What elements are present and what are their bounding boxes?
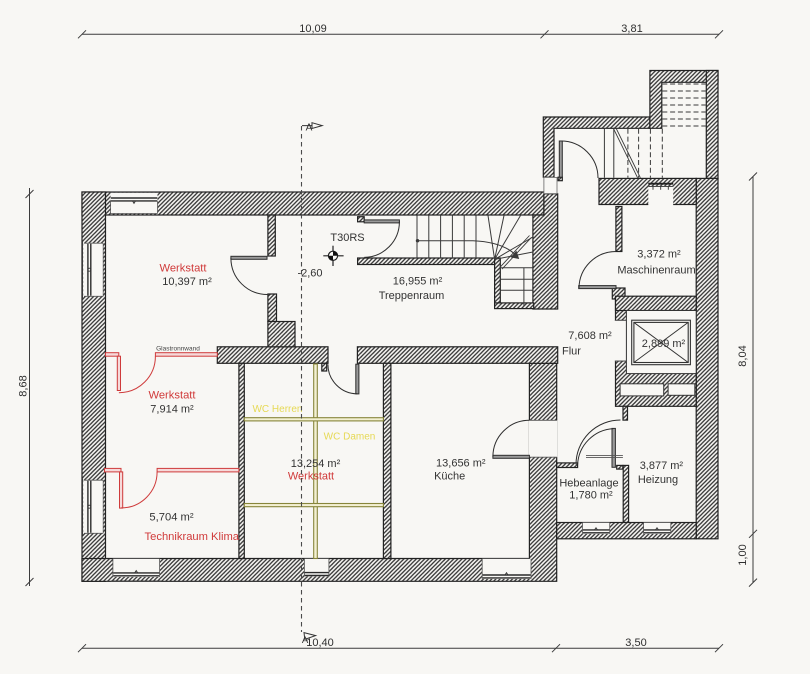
svg-text:Hebeanlage: Hebeanlage	[559, 478, 618, 490]
svg-text:A: A	[302, 635, 309, 646]
svg-text:WC Damen: WC Damen	[324, 431, 376, 442]
svg-text:8,04: 8,04	[737, 345, 749, 366]
svg-text:Technikraum Klima: Technikraum Klima	[145, 531, 240, 543]
svg-text:3,50: 3,50	[625, 637, 646, 649]
svg-text:Maschinenraum: Maschinenraum	[617, 264, 695, 276]
svg-text:3,372 m²: 3,372 m²	[637, 248, 681, 260]
svg-text:13,656 m²: 13,656 m²	[436, 457, 486, 469]
svg-text:Treppenraum: Treppenraum	[379, 290, 445, 302]
svg-text:7,914 m²: 7,914 m²	[150, 403, 194, 415]
svg-text:13,254 m²: 13,254 m²	[291, 458, 341, 470]
svg-text:Glastronnwand: Glastronnwand	[156, 345, 200, 352]
svg-text:10,09: 10,09	[299, 23, 327, 35]
svg-text:T30RS: T30RS	[330, 232, 364, 244]
svg-text:8,68: 8,68	[18, 375, 30, 396]
svg-text:1,00: 1,00	[737, 544, 749, 565]
svg-text:Flur: Flur	[562, 346, 581, 358]
svg-text:16,955 m²: 16,955 m²	[393, 276, 443, 288]
svg-text:Werkstatt: Werkstatt	[148, 389, 196, 401]
svg-text:2,899 m²: 2,899 m²	[642, 338, 686, 350]
svg-text:5,704 m²: 5,704 m²	[149, 511, 193, 523]
svg-text:3,81: 3,81	[621, 23, 642, 35]
svg-text:7,608 m²: 7,608 m²	[568, 330, 612, 342]
svg-text:Heizung: Heizung	[638, 474, 678, 486]
svg-text:Werkstatt: Werkstatt	[288, 471, 334, 483]
svg-text:10,397 m²: 10,397 m²	[162, 276, 212, 288]
svg-text:Werkstatt: Werkstatt	[159, 262, 207, 274]
svg-text:10,40: 10,40	[306, 637, 334, 649]
svg-text:WC Herren: WC Herren	[252, 404, 302, 415]
svg-text:3,877 m²: 3,877 m²	[640, 460, 684, 472]
svg-text:Küche: Küche	[434, 471, 465, 483]
svg-text:1,780 m²: 1,780 m²	[569, 490, 613, 502]
